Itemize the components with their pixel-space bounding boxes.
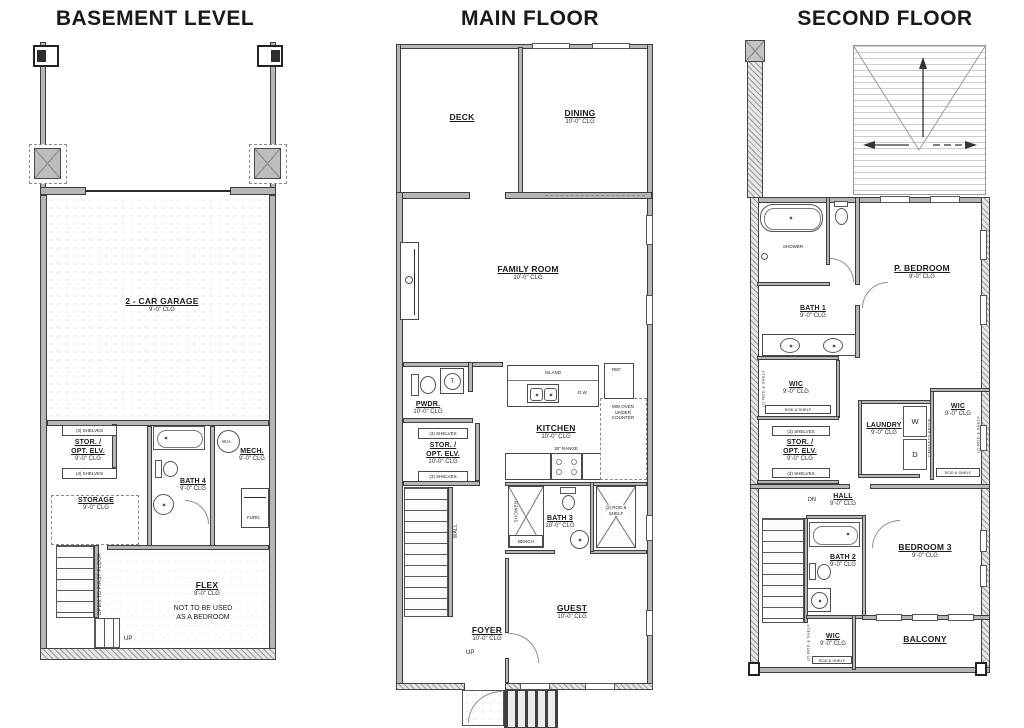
up-label: UP — [466, 650, 474, 656]
post — [33, 45, 59, 67]
stairs-second — [762, 518, 804, 623]
water-heater: W.H. — [217, 430, 240, 453]
wall-segment — [448, 487, 453, 617]
toilet-tank — [155, 460, 162, 478]
sink-counter — [807, 588, 831, 612]
wall-segment — [40, 187, 86, 195]
post — [748, 662, 760, 676]
wall-segment — [505, 550, 555, 554]
refrigerator: REF. — [604, 363, 634, 399]
wall-segment — [858, 400, 934, 404]
room-label-hall: HALL 9'-0" CLG — [830, 492, 856, 509]
wall-segment — [147, 426, 152, 548]
shelf-box: (3) SHELVES — [772, 468, 830, 478]
door-arc — [509, 633, 539, 663]
stairs-main — [404, 487, 448, 617]
wall-segment — [475, 423, 480, 481]
room-label-storage: STORAGE 9'-0" CLG — [78, 496, 114, 513]
stairs-basement — [56, 545, 94, 618]
post — [257, 45, 283, 67]
sink-counter: T — [440, 368, 464, 394]
outer-wall-right — [647, 44, 653, 690]
wall-segment — [757, 416, 839, 420]
shelf-box: (3) SHELVES — [62, 468, 117, 479]
washer: W — [903, 406, 927, 437]
party-wall — [747, 40, 763, 198]
window — [980, 425, 987, 451]
sink — [153, 494, 174, 515]
opening-dashed — [545, 195, 645, 196]
bathtub — [153, 426, 205, 450]
window — [876, 614, 902, 621]
room-label-bath4: BATH 4 9'-0" CLG — [180, 477, 206, 494]
garage-door — [85, 190, 231, 192]
outer-wall-bottom — [396, 683, 465, 690]
toilet-tank — [834, 201, 848, 207]
island-sink — [527, 384, 559, 403]
room-label-stor-main: STOR. / OPT. ELV. 10'-0" CLG — [426, 441, 460, 467]
wall-segment — [505, 558, 509, 633]
wall-segment — [468, 362, 473, 392]
room-label-wic-right: WIC 9'-0" CLG — [945, 402, 971, 419]
room-label-bedroom3: BEDROOM 3 9'-0" CLG — [898, 542, 951, 561]
floorplan-sheet: BASEMENT LEVEL 2 - CAR GARAGE 9'-0" CLG — [0, 0, 1024, 728]
wall-label: WALL — [453, 511, 459, 551]
shelf-box: (3) SHELVES — [62, 425, 117, 436]
dn-label: DN — [808, 497, 816, 503]
rod-and-shelf: ROD & SHELF — [936, 468, 980, 477]
range — [551, 453, 582, 480]
wall-segment — [518, 47, 523, 195]
door-arc — [830, 258, 854, 282]
flex-note: NOT TO BE USED AS A BEDROOM — [174, 604, 233, 622]
toilet-bowl — [835, 208, 848, 225]
outer-wall-bottom — [750, 667, 990, 673]
wall-segment — [862, 515, 866, 618]
bathtub — [809, 522, 860, 547]
vanity — [762, 334, 856, 356]
plan-title-basement: BASEMENT LEVEL — [56, 7, 254, 31]
wall-segment — [403, 418, 473, 423]
window — [880, 196, 910, 203]
wall-segment — [757, 282, 830, 286]
post — [34, 148, 61, 179]
rod-shelf-label: (2) ROD & SHELF — [976, 407, 981, 463]
wall-segment — [230, 187, 276, 195]
window — [646, 610, 653, 636]
post — [745, 40, 765, 62]
freestanding-tub — [760, 204, 823, 232]
toilet-tank — [809, 563, 816, 580]
room-label-dining: DINING 10'-0" CLG — [565, 108, 596, 127]
room-label-laundry: LAUNDRY 9'-0" CLG — [866, 421, 901, 438]
room-label-stor-second: STOR. / OPT. ELV. 9'-0" CLG — [783, 438, 817, 464]
wall-segment — [930, 388, 934, 480]
wall-segment — [590, 550, 647, 554]
under-counter-appliance-label: MW OVEN UNDER COUNTER — [612, 404, 634, 421]
wall-segment — [107, 545, 269, 550]
room-label-kitchen: KITCHEN 10'-0" CLG — [536, 423, 575, 442]
window — [646, 215, 653, 245]
toilet-tank — [411, 374, 419, 396]
room-label-family: FAMILY ROOM 10'-0" CLG — [497, 264, 558, 283]
room-label-bath3: BATH 3 10'-0" CLG — [545, 514, 574, 531]
window — [585, 683, 615, 690]
toilet-tank — [560, 487, 576, 494]
window — [912, 614, 938, 621]
room-label-wic-left: WIC 9'-0" CLG — [783, 380, 809, 397]
counter — [505, 453, 551, 480]
window — [520, 683, 550, 690]
flex-floor — [100, 550, 269, 648]
window — [532, 43, 570, 49]
window — [646, 515, 653, 541]
shower-label: SHOWER — [783, 244, 803, 250]
wall-segment — [858, 474, 920, 478]
window — [592, 43, 630, 49]
door-arc — [185, 500, 209, 524]
wall-segment — [836, 360, 840, 418]
room-label-deck: DECK — [450, 112, 475, 123]
wall-segment — [590, 482, 594, 552]
sink — [570, 530, 589, 549]
wall-segment — [852, 615, 856, 670]
shower-head — [761, 253, 768, 260]
wall-segment — [806, 515, 864, 519]
dryer: D — [903, 439, 927, 470]
shower-bench: BENCH — [509, 535, 543, 547]
wall-segment — [396, 192, 470, 199]
room-label-foyer: FOYER 10'-0" CLG — [472, 625, 502, 644]
plan-title-main: MAIN FLOOR — [461, 7, 599, 31]
window — [980, 295, 987, 325]
rod-shelf-label: (2) ROD & SHELF — [806, 617, 811, 669]
outer-wall-left — [40, 195, 47, 660]
closet-label: (2) ROD & SHELF — [604, 505, 627, 516]
toilet-bowl — [562, 495, 575, 510]
wall-segment — [757, 356, 839, 360]
plan-title-second: SECOND FLOOR — [797, 7, 972, 31]
wall-segment — [403, 481, 480, 486]
window — [948, 614, 974, 621]
range-label: 30" RANGE — [554, 446, 578, 452]
outer-wall-bottom — [40, 648, 276, 660]
toilet-bowl — [420, 376, 436, 394]
wall-segment — [396, 44, 401, 196]
roof-slope-arrows — [853, 45, 986, 195]
wall-segment — [210, 426, 215, 548]
room-label-bath1: BATH 1 9'-0" CLG — [800, 304, 826, 321]
rod-and-shelf: ROD & SHELF — [765, 405, 831, 414]
wall-segment — [870, 484, 990, 489]
wall-segment — [858, 400, 862, 478]
room-label-stor-opt-elv: STOR. / OPT. ELV. 9'-0" CLG — [71, 438, 105, 464]
shelf-box: (3) SHELVES — [772, 426, 830, 436]
door-arc — [862, 282, 888, 308]
window — [646, 295, 653, 325]
fireplace — [400, 242, 419, 320]
furnace: FURN. — [241, 488, 269, 528]
wall-segment — [826, 197, 830, 265]
post — [975, 662, 987, 676]
wall-segment — [806, 615, 866, 619]
up-label: UP — [124, 636, 132, 642]
room-label-guest: GUEST 10'-0" CLG — [557, 603, 587, 622]
room-label-wic-bottom: WIC 9'-0" CLG — [820, 632, 846, 649]
wall-segment — [930, 388, 990, 392]
shower-label: SHOWER — [514, 492, 519, 532]
window — [980, 565, 987, 587]
window — [980, 230, 987, 260]
shelf-box: (3) SHELVES — [418, 428, 468, 439]
open-to-first-floor-label: OPEN TO FIRST FLOOR — [97, 544, 103, 624]
rod-and-shelf: ROD & SHELF — [812, 656, 852, 664]
wall-segment — [750, 484, 850, 489]
toilet-bowl — [817, 564, 831, 580]
entry-steps — [504, 690, 558, 728]
room-label-balcony: BALCONY — [903, 634, 946, 645]
window — [930, 196, 960, 203]
outer-wall-left — [750, 197, 759, 673]
room-label-bath2: BATH 2 9'-0" CLG — [830, 553, 856, 570]
room-label-garage: 2 - CAR GARAGE 9'-0" CLG — [125, 296, 198, 315]
room-label-pwdr: PWDR. 10'-0" CLG — [413, 400, 442, 417]
toilet-bowl — [163, 461, 178, 477]
window — [980, 530, 987, 552]
door-arc — [872, 520, 900, 548]
room-label-flex: FLEX 9'-0" CLG — [194, 580, 220, 599]
wall-segment — [855, 197, 860, 285]
linen-closet — [596, 486, 636, 548]
room-label-mech: MECH. 9'-0" CLG — [239, 447, 265, 464]
wall-segment — [403, 362, 503, 367]
post — [254, 148, 281, 179]
room-label-pbedroom: P. BEDROOM 9'-0" CLG — [894, 263, 950, 282]
outer-wall-right — [269, 195, 276, 660]
